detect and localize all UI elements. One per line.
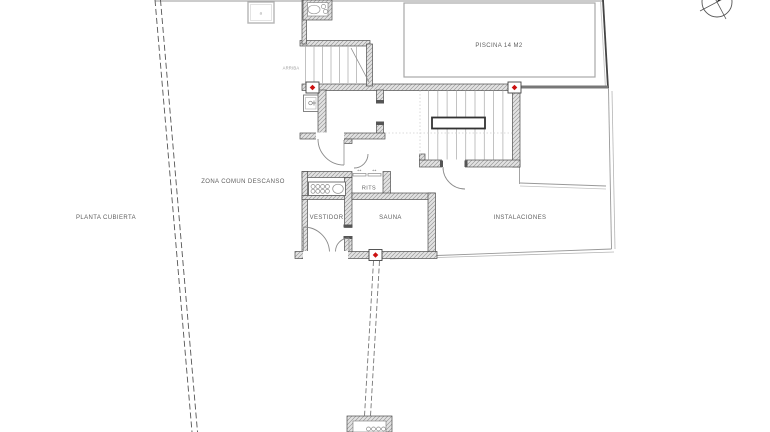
pool: PISCINA 14 M2 [404, 3, 595, 77]
section-trace-lines [365, 261, 380, 416]
red-marker-icon [306, 82, 319, 93]
sliding-arrow-icon: ↔ [356, 167, 363, 174]
door-arc-landing [318, 139, 344, 165]
tap-icon [321, 4, 325, 8]
wall-stair-top [300, 41, 370, 47]
wall-vestidor-top [302, 172, 352, 178]
wall-lockers-bottom [302, 196, 347, 200]
stair-upper-left [306, 46, 370, 83]
sauna-label: SAUNA [379, 215, 402, 221]
wall-pool-deck-dark [520, 86, 608, 89]
arriba-label: ARRIBA [283, 66, 300, 71]
compass-north-icon [700, 0, 735, 19]
wall-stair2-bottom [420, 160, 521, 167]
stair-main-right [385, 91, 512, 160]
wall-main-horizontal [302, 84, 514, 91]
pool-label: PISCINA 14 M2 [475, 43, 522, 49]
zona-comun-label: ZONA COMUN DESCANSO [201, 179, 285, 185]
sliding-panel-2 [368, 174, 381, 177]
elevator-jamb-bottom [376, 122, 384, 126]
property-line-left-inner [161, 0, 198, 432]
stair2-jamb-right [465, 161, 468, 168]
skylight: a [248, 2, 274, 23]
door-arc-instalaciones [443, 167, 465, 189]
pool-outline [404, 3, 595, 77]
wall-sauna-top [352, 193, 435, 200]
stair2-jamb-left [440, 161, 443, 168]
instalaciones-label: INSTALACIONES [494, 215, 547, 221]
stair-handrail [432, 118, 485, 129]
red-marker-icon [369, 250, 382, 261]
wall-stair2-right [513, 90, 521, 167]
sliding-panel-1 [353, 174, 366, 177]
wall-sauna-right [428, 193, 436, 258]
opening-landing-door [316, 133, 344, 141]
opening-vestidor-door [303, 251, 348, 259]
vestidor-label: VESTIDOR [310, 215, 344, 221]
floor-plan-canvas: PISCINA 14 M2 [0, 0, 770, 432]
instalaciones-top-line-1 [520, 183, 606, 186]
opening-stair2-door [442, 160, 465, 168]
property-line-right [603, 0, 608, 88]
boundary-right-thin-2 [612, 91, 615, 249]
sauna-jamb-top [344, 225, 353, 228]
rits-label: RITS [362, 186, 376, 192]
tap-icon [323, 9, 327, 13]
landing-sink [304, 95, 319, 112]
floor-plan-drawing: PISCINA 14 M2 [0, 0, 770, 432]
skylight-label: a [260, 11, 263, 16]
wall-door-jamb-tab [344, 139, 352, 144]
instalaciones-top-line-2 [520, 186, 606, 189]
basin-icon [308, 5, 320, 14]
wall-elevator-left [318, 90, 326, 135]
property-line-left-outer [155, 0, 192, 432]
boundary-right-thin-1 [609, 88, 612, 249]
rits-sliding-door: ↔ ↔ [353, 167, 381, 177]
wall-vestidor-left [302, 172, 308, 259]
red-marker-icon [508, 82, 521, 93]
vestidor-lockers [309, 182, 346, 196]
planta-cubierta-label: PLANTA CUBIERTA [76, 215, 136, 221]
sliding-arrow-icon: ↔ [371, 167, 378, 174]
elevator-jamb-top [376, 100, 384, 104]
